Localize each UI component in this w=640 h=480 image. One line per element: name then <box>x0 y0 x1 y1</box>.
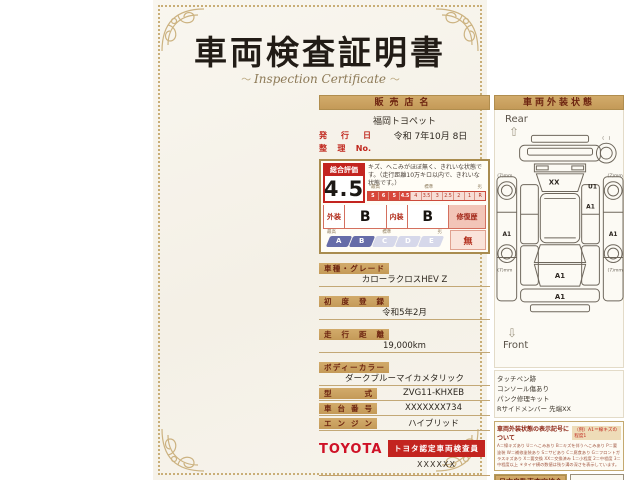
car-exterior-diagram: XX U1 A1 A1 A1 A1 A1 ( ) (7)mm (7)mm (7)… <box>495 122 625 332</box>
detail-label: 型式 <box>319 388 377 399</box>
marker-right-door: A1 <box>586 204 595 210</box>
grade-scale: A B C D E <box>328 236 446 247</box>
subtitle-ornament: ～ <box>390 75 399 86</box>
exterior-section-header: 車両外装状態 <box>494 95 624 110</box>
exterior-grade-value: B <box>345 205 387 228</box>
detail-row-engine: エンジン ハイブリッド <box>319 416 490 431</box>
detail-label: 初度登録 <box>319 296 389 307</box>
detail-row-body-color: ボディーカラー ダークブルーマイカメタリック <box>319 355 490 386</box>
marker-left-rocker: A1 <box>502 232 511 238</box>
tire-depth-front-right: (7)mm <box>608 267 624 273</box>
backside-note: 総合評価、内外装評価の詳しい説明については裏面をご覧ください <box>570 474 624 480</box>
legend-title: 車両外装状態の表示記号について <box>497 424 570 442</box>
exterior-grade-label: 外装 <box>324 205 345 228</box>
detail-value: ZVG11-KHXEB <box>377 388 490 398</box>
reference-number-label: 整理No. <box>319 143 371 154</box>
issue-date-value: 令和 7年10月 8日 <box>371 129 490 142</box>
detail-value: XXXXXXX734 <box>377 403 490 413</box>
tire-depth-rear-left: (7)mm <box>497 173 513 179</box>
assessment-box: 日本自動車査定協会 定期監査 本評価基準の運用について、日本自動車査定協会による… <box>494 474 567 480</box>
detail-label: 車種・グレード <box>319 263 389 274</box>
marker-hood: A1 <box>555 272 565 280</box>
certificate-page: 車両検査証明書 ～ Inspection Certificate ～ 販売店名 … <box>153 0 487 480</box>
certifier-block: TOYOTA トヨタ認定車両検査員 XXXXXX <box>319 436 490 469</box>
interior-grade-label: 内装 <box>387 205 408 228</box>
detail-row-model: 車種・グレード カローラクロスHEV Z <box>319 256 490 287</box>
detail-row-model-code: 型式 ZVG11-KHXEB <box>319 386 490 401</box>
dealer-name: 福岡トヨペット <box>319 110 490 129</box>
overall-rating-label: 総合評価 <box>325 165 363 176</box>
detail-label: 走行距離 <box>319 329 389 340</box>
car-diagram-panel: Rear ⇧ ⇩ Front <box>494 110 624 368</box>
detail-value: ダークブルーマイカメタリック <box>319 374 490 386</box>
tire-depth-rear-right: (7)mm <box>608 173 624 179</box>
detail-label: ボディーカラー <box>319 362 389 373</box>
rating-box: 総合評価 4.5 キズ、へこみがほぼ無く、きれいな状態です。（走行距離10万キロ… <box>319 159 490 254</box>
tire-depth-front-left: (7)mm <box>497 267 513 273</box>
rating-comment: キズ、へこみがほぼ無く、きれいな状態です。（走行距離10万キロ以内で、きれいな状… <box>367 163 486 185</box>
marker-front-bumper: A1 <box>555 293 565 301</box>
interior-grade-value: B <box>408 205 450 228</box>
screenshot: 車両検査証明書 ～ Inspection Certificate ～ 販売店名 … <box>0 0 640 480</box>
detail-value: 令和5年2月 <box>319 308 490 320</box>
subtitle-ornament: ～ <box>241 75 250 86</box>
spare-tire-label: ( ) <box>602 135 610 141</box>
toyota-logo: TOYOTA <box>319 436 383 457</box>
detail-label: 車台番号 <box>319 403 377 414</box>
marker-rear: XX <box>549 179 560 187</box>
detail-label: エンジン <box>319 418 377 429</box>
detail-value: ハイブリッド <box>377 417 490 429</box>
corner-flourish-icon <box>160 427 206 473</box>
detail-row-mileage: 走行距離 19,000km <box>319 322 490 353</box>
issue-date-label: 発行日 <box>319 130 371 141</box>
overall-rating-cell: 総合評価 4.5 <box>323 163 365 203</box>
legend-example: （例）A1＝線キズの程度1 <box>572 426 621 440</box>
certified-inspector-stamp: トヨタ認定車両検査員 <box>388 440 485 457</box>
repair-history-label: 修復歴 <box>449 205 485 228</box>
repair-history-value: 無 <box>450 230 486 250</box>
divider <box>319 475 490 476</box>
assessment-header: 日本自動車査定協会 定期監査 <box>495 475 566 480</box>
detail-row-chassis-number: 車台番号 XXXXXXX734 <box>319 401 490 416</box>
detail-value: 19,000km <box>319 341 490 353</box>
rating-scale: S 6 5 4.5 4 3.5 3 2.5 2 1 R <box>367 191 486 201</box>
issue-date-row: 発行日 令和 7年10月 8日 <box>319 129 490 142</box>
inspector-name: XXXXXX <box>383 460 490 469</box>
page-title: 車両検査証明書 <box>153 26 487 74</box>
detail-value: カローラクロスHEV Z <box>319 275 490 287</box>
legend-box: 車両外装状態の表示記号について （例）A1＝線キズの程度1 A＝線キズあり U＝… <box>494 421 624 471</box>
marker-quarter: U1 <box>588 185 597 191</box>
detail-row-first-registration: 初度登録 令和5年2月 <box>319 289 490 320</box>
front-label: Front <box>503 340 528 351</box>
overall-rating-value: 4.5 <box>325 176 363 201</box>
vehicle-info-column: 販売店名 福岡トヨペット 発行日 令和 7年10月 8日 整理No. 総合評価 … <box>319 95 490 480</box>
marker-right-rocker: A1 <box>609 232 618 238</box>
reference-number-row: 整理No. <box>319 142 490 155</box>
exterior-condition-column: 車両外装状態 Rear ⇧ ⇩ Front <box>494 95 624 480</box>
condition-notes: タッチペン跡 コンソール傷あり パンク修理キット Rサイドメンバー 先端XX <box>494 370 624 418</box>
page-subtitle: ～ Inspection Certificate ～ <box>153 71 487 86</box>
legend-body: A＝線キズあり U＝へこみあり B＝キズを伴うへこみあり P＝要塗装 W＝補修塗… <box>497 443 621 468</box>
dealer-section-header: 販売店名 <box>319 95 490 110</box>
